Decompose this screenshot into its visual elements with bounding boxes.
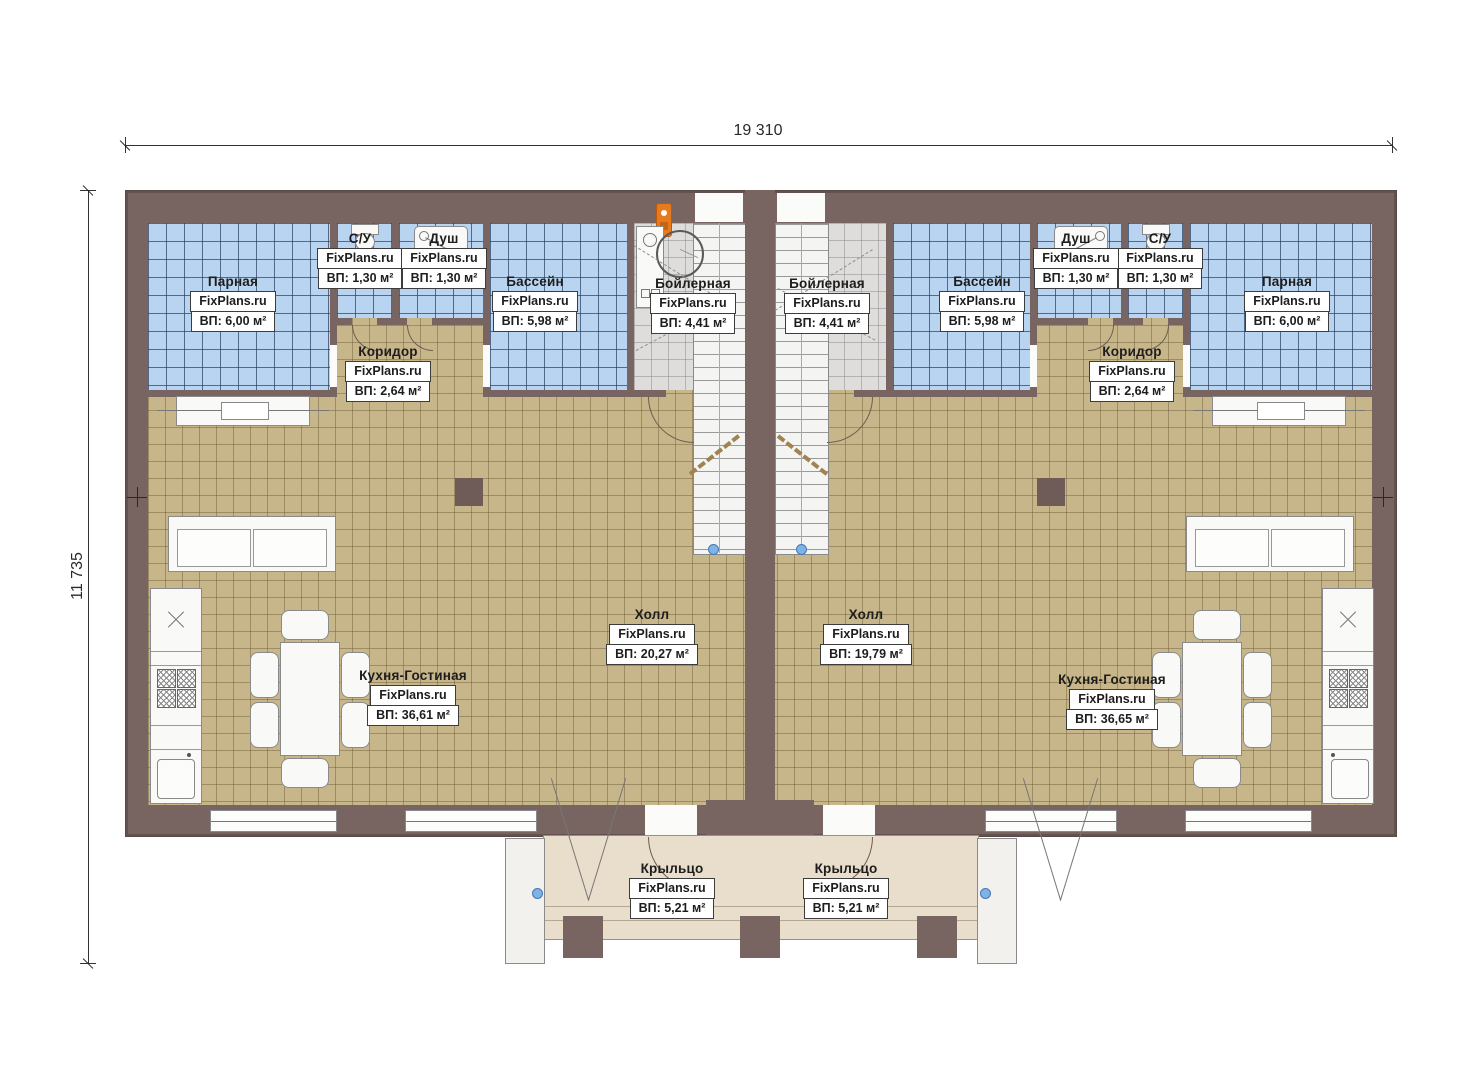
room-name: Крыльцо — [815, 861, 878, 876]
room-name: Холл — [849, 607, 884, 622]
rear-door-opening — [777, 193, 825, 222]
counter-divider — [1323, 665, 1373, 666]
window — [985, 810, 1117, 832]
sofa-left — [168, 516, 336, 572]
sofa-cushion — [1271, 529, 1345, 567]
stove-burner-icon — [1329, 689, 1348, 708]
bench-headrest — [1257, 402, 1305, 420]
room-watermark: FixPlans.ru — [803, 878, 888, 899]
staircase-left — [693, 223, 747, 555]
chair — [1193, 610, 1241, 640]
sofa-right — [1186, 516, 1354, 572]
stove-burner-icon — [1329, 669, 1348, 688]
porch-marker-dot — [532, 888, 543, 899]
counter-divider — [1323, 749, 1373, 750]
dimension-line-left — [88, 190, 89, 963]
room-name: Душ — [429, 231, 458, 246]
room-watermark: FixPlans.ru — [939, 291, 1024, 312]
stair-guide-line — [801, 223, 802, 553]
boiler-flue-dot — [661, 210, 667, 216]
interior-wall — [1113, 318, 1143, 325]
room-name: Кухня-Гостиная — [1058, 672, 1166, 687]
entry-door-opening — [823, 805, 875, 835]
stove-burner-icon — [157, 689, 176, 708]
rear-door-opening — [695, 193, 743, 222]
sink-tap — [1331, 753, 1335, 757]
porch-side-steps-left — [505, 838, 545, 964]
window — [405, 810, 537, 832]
room-name: Парная — [1262, 274, 1312, 289]
room-area: ВП: 5,98 м² — [940, 311, 1025, 332]
chair — [250, 652, 279, 698]
stove-burner-icon — [157, 669, 176, 688]
stove-burner-icon — [1349, 669, 1368, 688]
entry-door-opening — [645, 805, 697, 835]
room-name: Бассейн — [506, 274, 564, 289]
label-kryltso-left: Крыльцо FixPlans.ru ВП: 5,21 м² — [572, 861, 772, 919]
dimension-width-label: 19 310 — [708, 122, 808, 140]
porch-column — [917, 916, 957, 958]
label-kryltso-right: Крыльцо FixPlans.ru ВП: 5,21 м² — [746, 861, 946, 919]
sofa-cushion — [253, 529, 327, 567]
counter-divider — [151, 665, 201, 666]
interior-wall — [483, 390, 634, 397]
room-name: Холл — [635, 607, 670, 622]
room-name: Бойлерная — [655, 276, 731, 291]
room-area: ВП: 2,64 м² — [1090, 381, 1175, 402]
tank-needle — [680, 249, 699, 258]
sink-icon — [1331, 759, 1369, 799]
chair — [1193, 758, 1241, 788]
chair — [281, 758, 329, 788]
room-watermark: FixPlans.ru — [1244, 291, 1329, 312]
label-kuhnya-right: Кухня-Гостиная FixPlans.ru ВП: 36,65 м² — [1012, 672, 1212, 730]
room-name: Коридор — [358, 344, 418, 359]
room-name: Крыльцо — [641, 861, 704, 876]
room-watermark: FixPlans.ru — [401, 248, 486, 269]
room-watermark: FixPlans.ru — [823, 624, 908, 645]
porch-marker-dot — [980, 888, 991, 899]
interior-wall — [886, 390, 1037, 397]
sofa-cushion — [177, 529, 251, 567]
chair — [1243, 702, 1272, 748]
wall-axis-mark — [1383, 487, 1384, 507]
sauna-bench-right — [1212, 396, 1346, 426]
room-watermark: FixPlans.ru — [609, 624, 694, 645]
wall-axis-mark — [137, 487, 138, 507]
party-wall-pier — [706, 800, 814, 835]
room-name: Кухня-Гостиная — [359, 668, 467, 683]
counter-divider — [1323, 651, 1373, 652]
window — [1185, 810, 1312, 832]
stove-burner-icon — [177, 669, 196, 688]
room-area: ВП: 6,00 м² — [191, 311, 276, 332]
label-holl-right: Холл FixPlans.ru ВП: 19,79 м² — [766, 607, 966, 665]
appliance-dial — [643, 233, 657, 247]
interior-wall — [377, 318, 407, 325]
porch-column — [563, 916, 603, 958]
room-area: ВП: 6,00 м² — [1245, 311, 1330, 332]
room-name: Душ — [1061, 231, 1090, 246]
counter-divider — [151, 651, 201, 652]
sink-tap — [187, 753, 191, 757]
interior-wall — [1168, 318, 1183, 325]
window — [210, 810, 337, 832]
room-name: Коридор — [1102, 344, 1162, 359]
room-area: ВП: 20,27 м² — [606, 644, 698, 665]
boiler-tank-icon — [656, 230, 704, 278]
room-area: ВП: 19,79 м² — [820, 644, 912, 665]
dimension-height-label: 11 735 — [69, 516, 87, 636]
column-left — [455, 478, 483, 506]
label-boilernaya-right: Бойлерная FixPlans.ru ВП: 4,41 м² — [727, 276, 927, 334]
sink-icon — [157, 759, 195, 799]
label-koridor-left: Коридор FixPlans.ru ВП: 2,64 м² — [288, 344, 488, 402]
room-watermark: FixPlans.ru — [370, 685, 455, 706]
room-name: Парная — [208, 274, 258, 289]
room-name: Бойлерная — [789, 276, 865, 291]
room-watermark: FixPlans.ru — [492, 291, 577, 312]
room-area: ВП: 5,21 м² — [630, 898, 715, 919]
counter-divider — [151, 749, 201, 750]
label-koridor-right: Коридор FixPlans.ru ВП: 2,64 м² — [1032, 344, 1232, 402]
interior-wall — [854, 390, 886, 397]
room-watermark: FixPlans.ru — [629, 878, 714, 899]
stair-marker-dot — [708, 544, 719, 555]
room-area: ВП: 2,64 м² — [346, 381, 431, 402]
room-area: ВП: 36,61 м² — [367, 705, 459, 726]
stove-burner-icon — [177, 689, 196, 708]
chair — [281, 610, 329, 640]
interior-wall — [337, 318, 352, 325]
room-area: ВП: 4,41 м² — [785, 313, 870, 334]
room-name: Бассейн — [953, 274, 1011, 289]
sofa-cushion — [1195, 529, 1269, 567]
stair-guide-line — [719, 223, 720, 553]
stair-marker-dot — [796, 544, 807, 555]
counter-divider — [151, 725, 201, 726]
room-watermark: FixPlans.ru — [1089, 361, 1174, 382]
room-watermark: FixPlans.ru — [345, 361, 430, 382]
stove-burner-icon — [1349, 689, 1368, 708]
interior-wall — [634, 390, 666, 397]
label-kuhnya-left: Кухня-Гостиная FixPlans.ru ВП: 36,61 м² — [313, 668, 513, 726]
counter-divider — [1323, 725, 1373, 726]
kitchen-counter-right — [1322, 588, 1374, 804]
room-area: ВП: 36,65 м² — [1066, 709, 1158, 730]
room-watermark: FixPlans.ru — [784, 293, 869, 314]
bench-headrest — [221, 402, 269, 420]
room-watermark: FixPlans.ru — [1033, 248, 1118, 269]
room-watermark: FixPlans.ru — [190, 291, 275, 312]
room-area: ВП: 4,41 м² — [651, 313, 736, 334]
label-holl-left: Холл FixPlans.ru ВП: 20,27 м² — [552, 607, 752, 665]
floor-plan: 19 310 11 735 — [0, 0, 1474, 1080]
kitchen-counter-left — [150, 588, 202, 804]
staircase-right — [775, 223, 829, 555]
chair — [1243, 652, 1272, 698]
room-watermark: FixPlans.ru — [650, 293, 735, 314]
porch-column — [740, 916, 780, 958]
column-right — [1037, 478, 1065, 506]
room-watermark: FixPlans.ru — [1069, 689, 1154, 710]
dimension-line-top — [125, 145, 1392, 146]
porch-side-steps-right — [977, 838, 1017, 964]
chair — [250, 702, 279, 748]
room-area: ВП: 5,98 м² — [493, 311, 578, 332]
room-area: ВП: 5,21 м² — [804, 898, 889, 919]
